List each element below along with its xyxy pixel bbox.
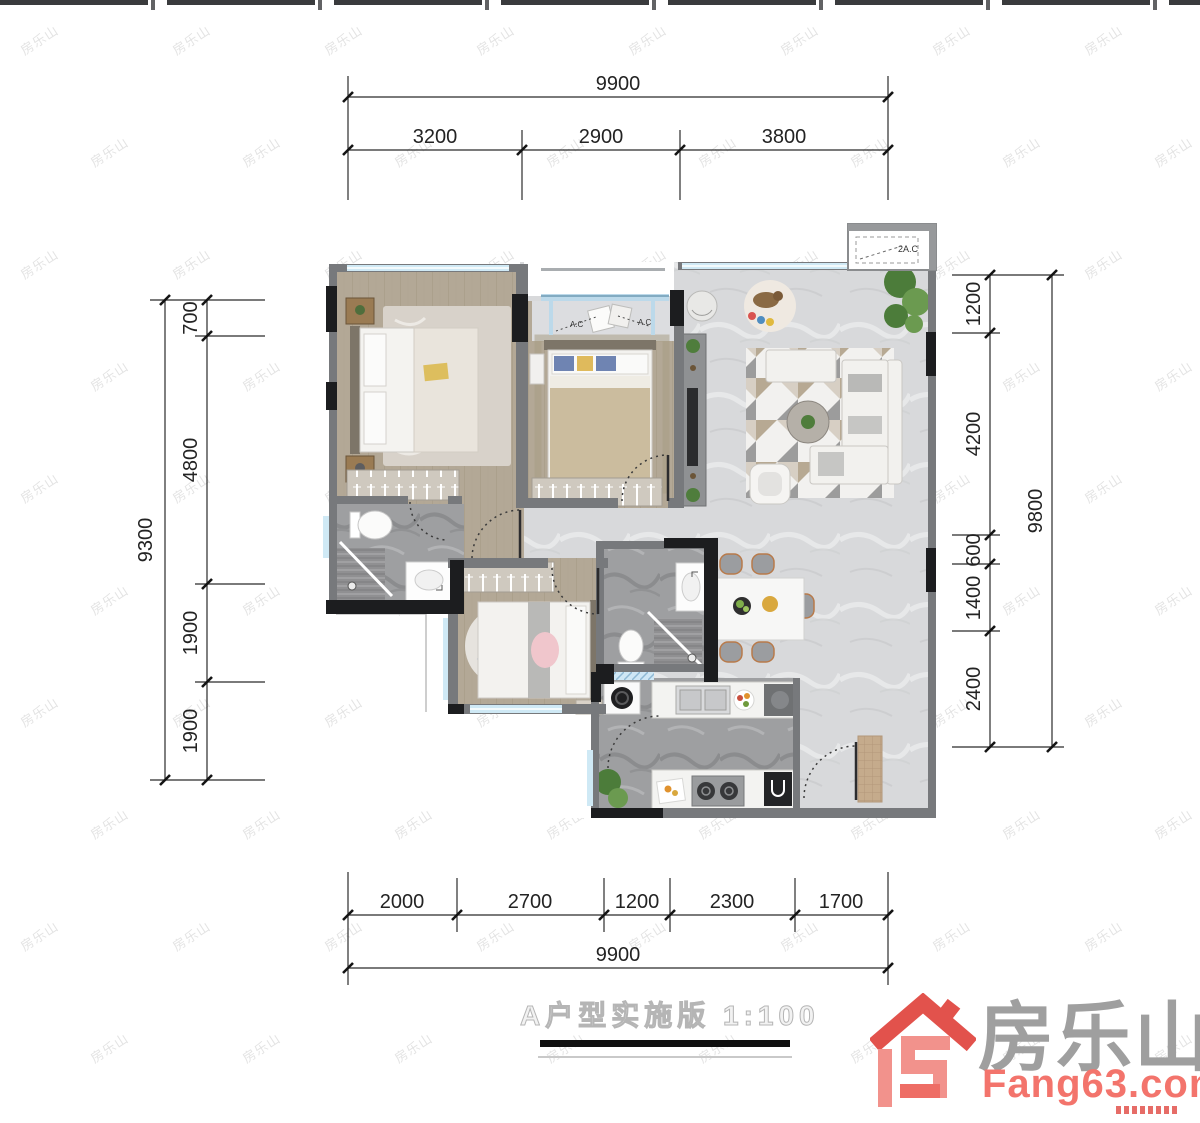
dim-label: 700 xyxy=(180,301,202,334)
ac-unit-right-label: A.C xyxy=(638,318,652,327)
dining-table xyxy=(712,578,804,640)
ac-unit-left-label: A.C xyxy=(570,320,584,329)
plant xyxy=(686,488,700,502)
under-counter-unit xyxy=(764,772,792,806)
pet-bed-inner xyxy=(758,472,782,496)
outside-gap xyxy=(514,712,596,818)
drawing-title-block: A户型实施版 1:100 xyxy=(520,994,810,1058)
dim-label: 1400 xyxy=(963,576,985,621)
dim-label: 1200 xyxy=(615,891,660,913)
page: { "watermark": { "text": "房乐山", "cols": … xyxy=(0,0,1200,1123)
dim-label: 2000 xyxy=(380,891,425,913)
ac-platform-label: 2A.C xyxy=(898,244,919,254)
upper-counter xyxy=(652,682,798,718)
table-plant xyxy=(801,415,815,429)
toilet xyxy=(350,511,392,539)
dim-label: 3200 xyxy=(413,126,458,148)
title-underline-bar xyxy=(540,1040,790,1047)
dim-label: 9800 xyxy=(1025,489,1047,534)
dim-label: 2400 xyxy=(963,667,985,712)
dim-label: 1900 xyxy=(180,709,202,754)
dim-label: 9900 xyxy=(596,944,641,966)
drain xyxy=(348,582,356,590)
dim-label: 2300 xyxy=(710,891,755,913)
cropped-top-content-ticks xyxy=(0,0,1200,10)
lower-counter xyxy=(652,770,794,812)
bed-2 xyxy=(544,340,656,480)
dim-bottom xyxy=(343,872,893,985)
seat-pillow xyxy=(608,304,632,328)
toy-ball xyxy=(748,312,756,320)
dim-label: 2700 xyxy=(508,891,553,913)
dim-label: 9300 xyxy=(135,518,157,563)
shower-floor xyxy=(333,548,385,602)
wardrobe xyxy=(347,470,459,500)
entry-mat xyxy=(858,736,882,802)
logo-fineprint xyxy=(1116,1106,1180,1114)
dim-left xyxy=(150,295,265,785)
plate xyxy=(762,596,778,612)
side-table xyxy=(530,354,544,384)
toy-ball xyxy=(757,316,765,324)
adjacent-unit-outline xyxy=(336,614,426,712)
decor-plant xyxy=(355,305,365,315)
dim-label: 3800 xyxy=(762,126,807,148)
balcony-railing xyxy=(541,268,665,271)
dim-label: 4800 xyxy=(180,438,202,483)
food-plate xyxy=(657,778,686,803)
gas-stove xyxy=(692,776,744,806)
pillows xyxy=(566,606,586,694)
dim-label: 2900 xyxy=(579,126,624,148)
dim-label: 1200 xyxy=(963,282,985,327)
floor-plan-svg: 9900 3200 2900 3800 2000 2700 1200 2300 … xyxy=(0,0,1200,1123)
bed-3 xyxy=(478,600,600,700)
ac-platform: 2A.C xyxy=(848,224,936,270)
round-chair xyxy=(687,291,717,321)
balcony-glass xyxy=(541,294,669,301)
plant xyxy=(686,339,700,353)
tv xyxy=(687,388,698,466)
sink-vanity xyxy=(406,562,452,602)
dim-label: 9900 xyxy=(596,73,641,95)
dim-label: 600 xyxy=(963,533,985,566)
title-underline-thin xyxy=(538,1056,792,1058)
dim-label: 1900 xyxy=(180,611,202,656)
site-logo: 房乐山 Fang63.com xyxy=(868,990,1200,1123)
drain xyxy=(688,654,696,662)
pink-blanket xyxy=(531,632,559,668)
house-icon xyxy=(870,993,976,1113)
logo-site-text: Fang63.com xyxy=(982,1062,1200,1107)
dim-label: 1700 xyxy=(819,891,864,913)
bed-master xyxy=(350,326,478,454)
fruit-plate xyxy=(734,690,754,710)
dim-label: 4200 xyxy=(963,412,985,457)
master-hall-floor xyxy=(455,496,524,566)
drawing-title: A户型实施版 1:100 xyxy=(520,994,810,1034)
toy-ball xyxy=(766,318,774,326)
balcony2-exterior xyxy=(524,262,674,296)
sink-vanity xyxy=(676,563,706,611)
